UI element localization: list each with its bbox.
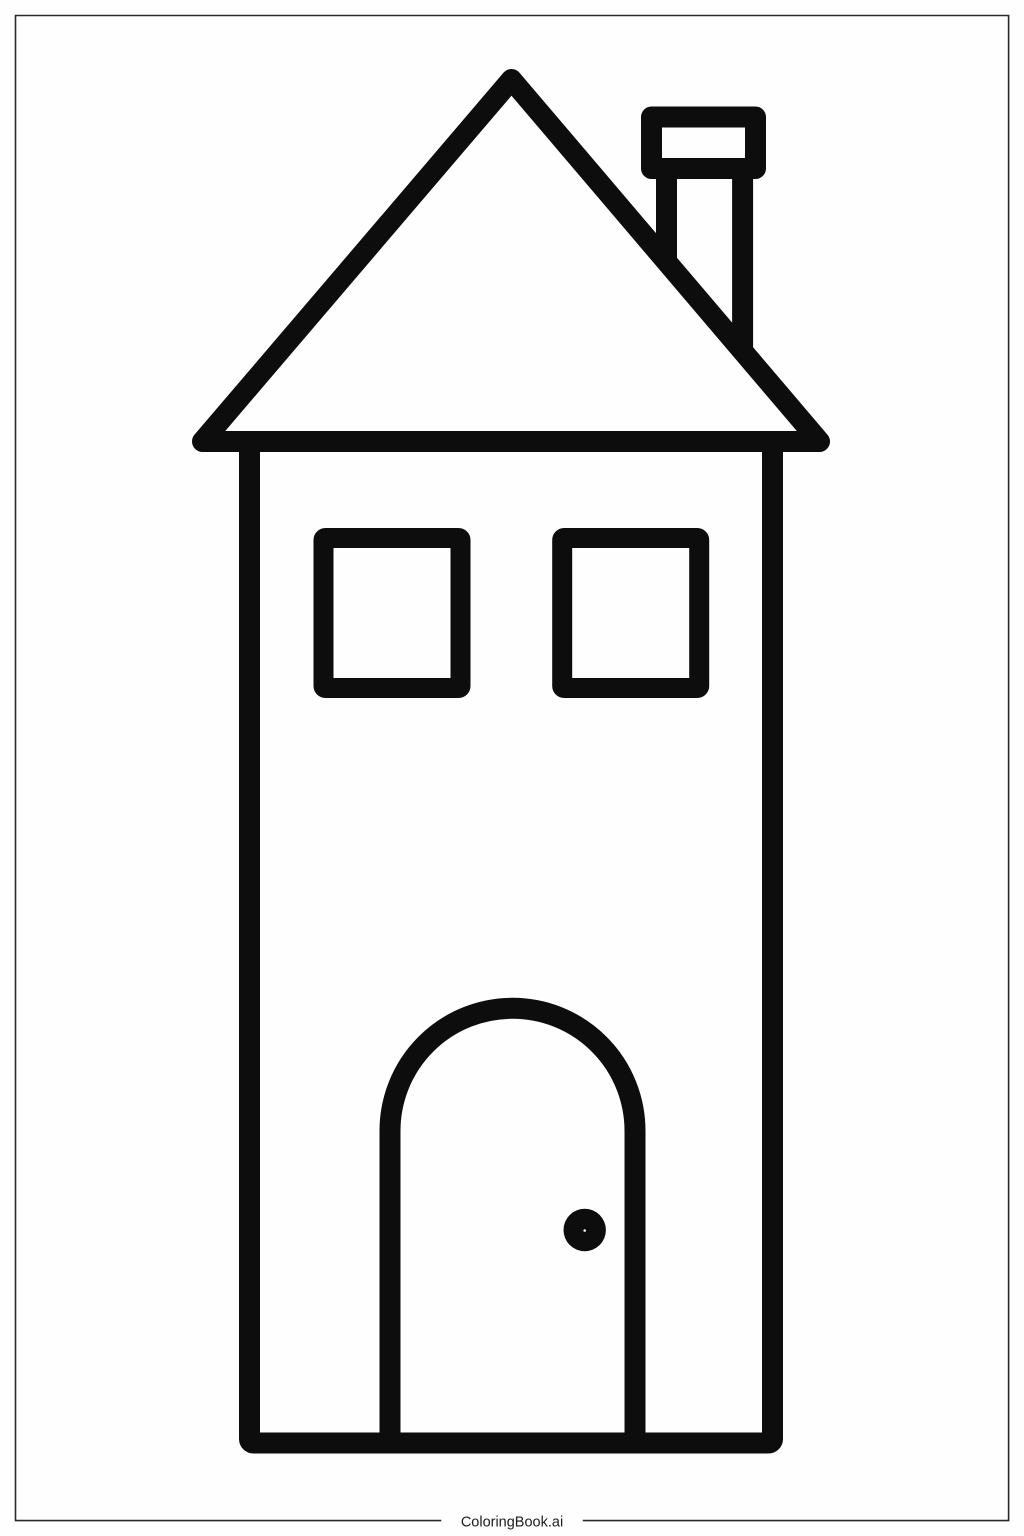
svg-text:ColoringBook.ai: ColoringBook.ai <box>461 1515 563 1531</box>
